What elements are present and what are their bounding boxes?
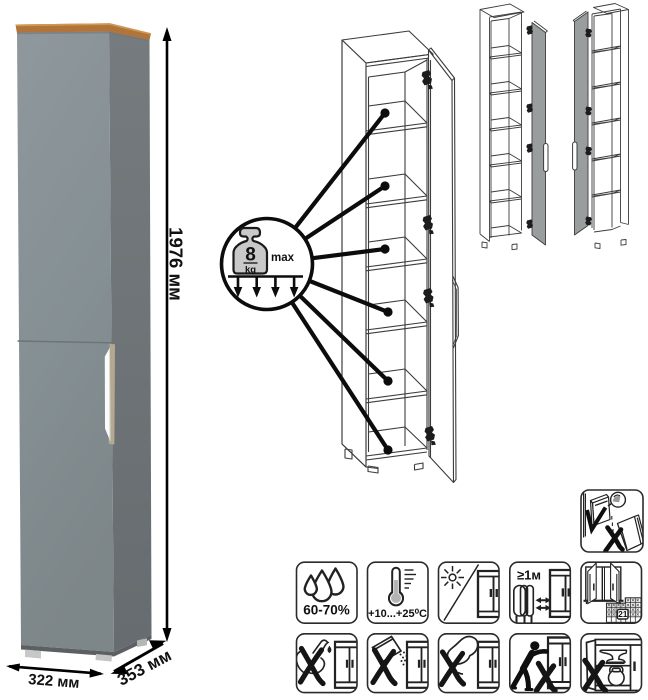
svg-text:kg: kg (245, 265, 256, 276)
svg-text:max: max (271, 252, 295, 264)
svg-text:21: 21 (618, 609, 628, 619)
svg-text:1976 мм: 1976 мм (166, 227, 187, 301)
svg-text:353 мм: 353 мм (114, 646, 174, 690)
svg-text:≥1м: ≥1м (517, 568, 541, 583)
svg-text:+10...+25⁰C: +10...+25⁰C (368, 608, 427, 620)
svg-text:322 мм: 322 мм (28, 671, 81, 692)
svg-text:60-70%: 60-70% (303, 603, 350, 618)
